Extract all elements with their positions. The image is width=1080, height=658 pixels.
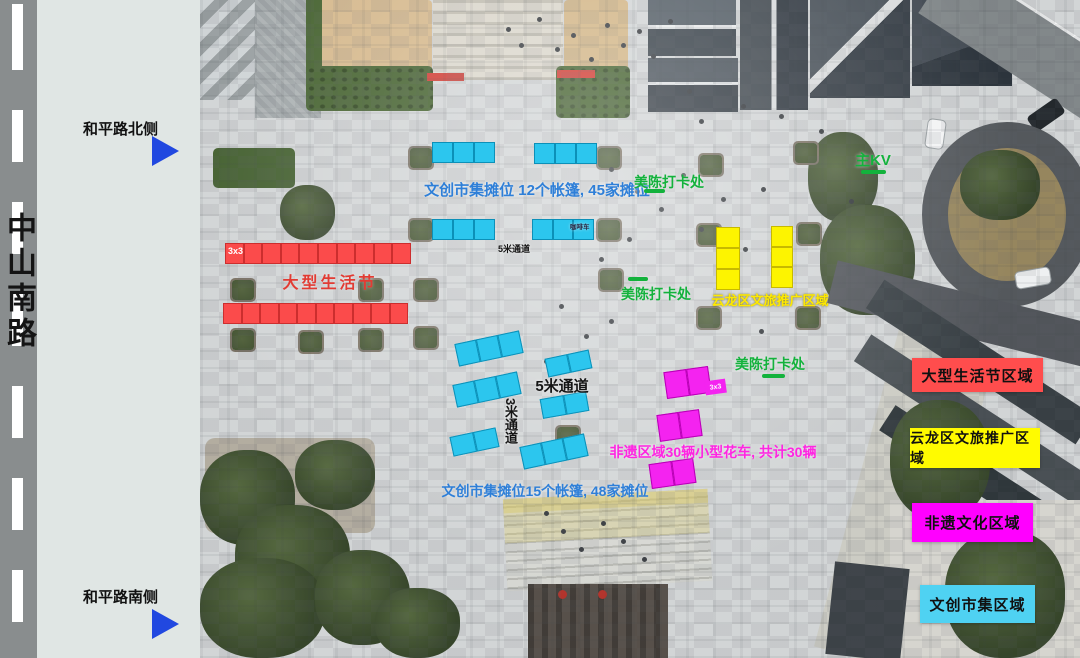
booth-cell-cyan xyxy=(474,142,495,163)
booth-group-cyan xyxy=(519,433,588,469)
booth-cell-red xyxy=(318,243,337,264)
booth-group-yellow xyxy=(771,226,793,288)
market-note-top: 文创市集摊位 12个帐篷, 45家摊位 xyxy=(424,182,650,199)
legend-item-yunlong-promo: 云龙区文旅推广区域 xyxy=(910,428,1040,468)
booth-cell-yellow xyxy=(716,227,740,248)
yunlong-zone-label: 云龙区文旅推广区域 xyxy=(711,294,828,309)
booth-cell-yellow xyxy=(771,247,793,268)
booth-cell-red xyxy=(355,243,374,264)
booth-cell-cyan xyxy=(453,142,474,163)
booth-cell-red xyxy=(390,303,409,324)
booth-cell-red xyxy=(242,303,261,324)
booth-cell-red xyxy=(297,303,316,324)
booth-cell-cyan xyxy=(432,142,453,163)
booth-cell-cyan xyxy=(562,433,588,460)
booth-cell-red xyxy=(353,303,372,324)
main-kv-label: 主KV xyxy=(855,152,891,169)
legend-item-heritage: 非遗文化区域 xyxy=(912,503,1033,542)
booth-cell-red xyxy=(262,243,281,264)
coffee-cart-label: 咖啡车 xyxy=(570,224,590,231)
booth-cell-red xyxy=(223,303,242,324)
booth-cell-cyan xyxy=(497,330,523,357)
booth-cell-red xyxy=(334,303,353,324)
booth-cell-red xyxy=(316,303,335,324)
photo-spot-label-1: 美陈打卡处 xyxy=(634,174,704,190)
booth-cell-red xyxy=(374,243,393,264)
aisle-5m-mid-label: 5米通道 xyxy=(535,378,588,395)
photo-spot-label-2: 美陈打卡处 xyxy=(621,286,691,302)
market-note-bottom: 文创市集摊位15个帐篷, 48家摊位 xyxy=(442,483,649,499)
booth-group-cyan xyxy=(432,142,495,163)
booth-cell-yellow xyxy=(716,248,740,269)
booth-cell-yellow xyxy=(771,267,793,288)
red-grid-size-label: 3x3 xyxy=(228,246,243,256)
booth-cell-red xyxy=(392,243,411,264)
booth-group-red xyxy=(225,243,411,264)
aisle-5m-top-label: 5米通道 xyxy=(498,244,530,254)
booth-cell-cyan xyxy=(540,395,567,419)
photo-spot-underline-1 xyxy=(644,189,665,193)
booth-group-magenta xyxy=(648,458,696,489)
booth-cell-red xyxy=(299,243,318,264)
booth-cell-red xyxy=(337,243,356,264)
event-layout-map: 中山南路 和平路北侧 和平路南侧 文创市集摊位 12个帐篷, 45家摊位 5米通… xyxy=(0,0,1080,658)
booth-cell-red xyxy=(371,303,390,324)
booth-group-yellow xyxy=(716,227,740,290)
photo-spot-underline-3 xyxy=(762,374,785,378)
booth-cell-red xyxy=(260,303,279,324)
booth-group-cyan xyxy=(432,219,495,240)
booth-group-magenta xyxy=(656,409,702,442)
booth-group-cyan xyxy=(454,330,523,366)
booth-cell-cyan xyxy=(532,219,553,240)
booth-layer xyxy=(0,0,1080,658)
booth-cell-cyan xyxy=(472,427,499,451)
legend-item-life-festival: 大型生活节区域 xyxy=(912,358,1043,392)
booth-cell-red xyxy=(244,243,263,264)
booth-cell-cyan xyxy=(453,219,474,240)
main-kv-underline xyxy=(861,170,886,174)
booth-cell-yellow xyxy=(716,269,740,290)
magenta-grid-size-label: 3x3 xyxy=(704,379,727,396)
booth-cell-cyan xyxy=(495,371,521,398)
photo-spot-label-3: 美陈打卡处 xyxy=(735,356,805,372)
booth-cell-magenta xyxy=(671,458,697,486)
booth-cell-cyan xyxy=(567,350,593,373)
photo-spot-dash-2 xyxy=(628,277,648,281)
booth-group-cyan xyxy=(449,427,499,456)
booth-cell-red xyxy=(279,303,298,324)
booth-group-red xyxy=(223,303,408,324)
aisle-3m-label: 3米通道 xyxy=(502,398,517,444)
booth-cell-cyan xyxy=(576,143,597,164)
legend-item-market: 文创市集区域 xyxy=(920,585,1035,623)
life-festival-label: 大型生活节 xyxy=(282,275,377,293)
booth-cell-magenta xyxy=(678,409,703,439)
booth-cell-cyan xyxy=(555,143,576,164)
booth-cell-yellow xyxy=(771,226,793,247)
booth-cell-cyan xyxy=(474,219,495,240)
booth-cell-red xyxy=(281,243,300,264)
booth-cell-cyan xyxy=(432,219,453,240)
booth-group-cyan xyxy=(545,350,593,378)
booth-group-cyan xyxy=(534,143,597,164)
heritage-note: 非遗区域30辆小型花车, 共计30辆 xyxy=(610,444,817,460)
booth-cell-cyan xyxy=(534,143,555,164)
